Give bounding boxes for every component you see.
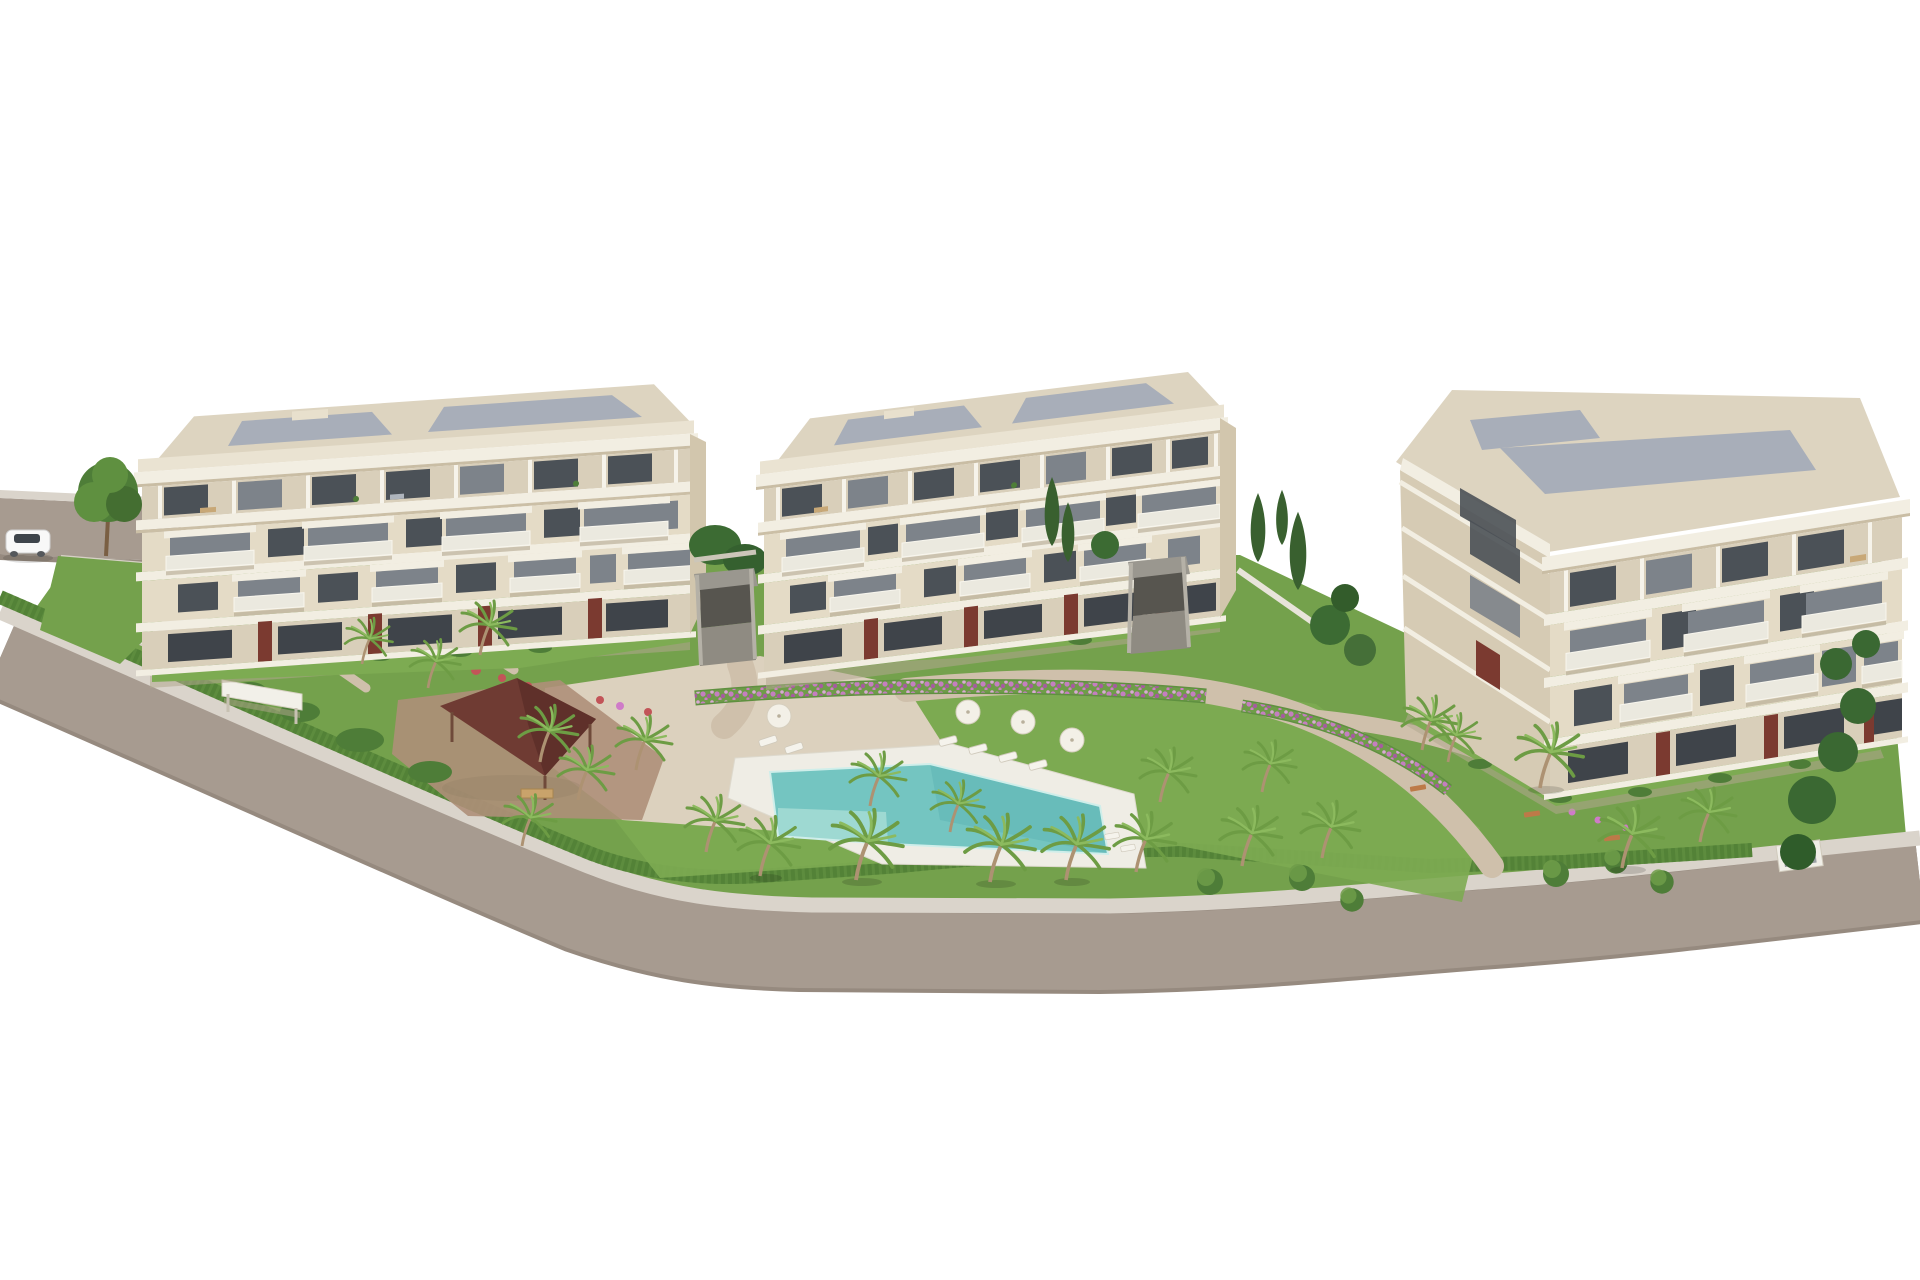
- parasol: [1011, 710, 1035, 734]
- accent-panel: [964, 606, 978, 648]
- parasol: [767, 704, 791, 728]
- accent-panel: [864, 618, 878, 660]
- accent-panel: [258, 621, 272, 662]
- parasol: [1060, 728, 1084, 752]
- building-left: [134, 381, 698, 676]
- cypress: [1251, 493, 1266, 562]
- car: [3, 530, 53, 563]
- cypress: [1276, 490, 1288, 545]
- accent-panel: [588, 598, 602, 639]
- accent-panel: [1656, 731, 1670, 777]
- cypress: [1290, 512, 1307, 590]
- accent-panel: [1764, 714, 1778, 760]
- accent-panel: [1064, 593, 1078, 635]
- architectural-render: New-build residential complex — aerial 3…: [0, 0, 1920, 1280]
- building-middle-endwall: [1220, 418, 1236, 618]
- parasol: [956, 700, 980, 724]
